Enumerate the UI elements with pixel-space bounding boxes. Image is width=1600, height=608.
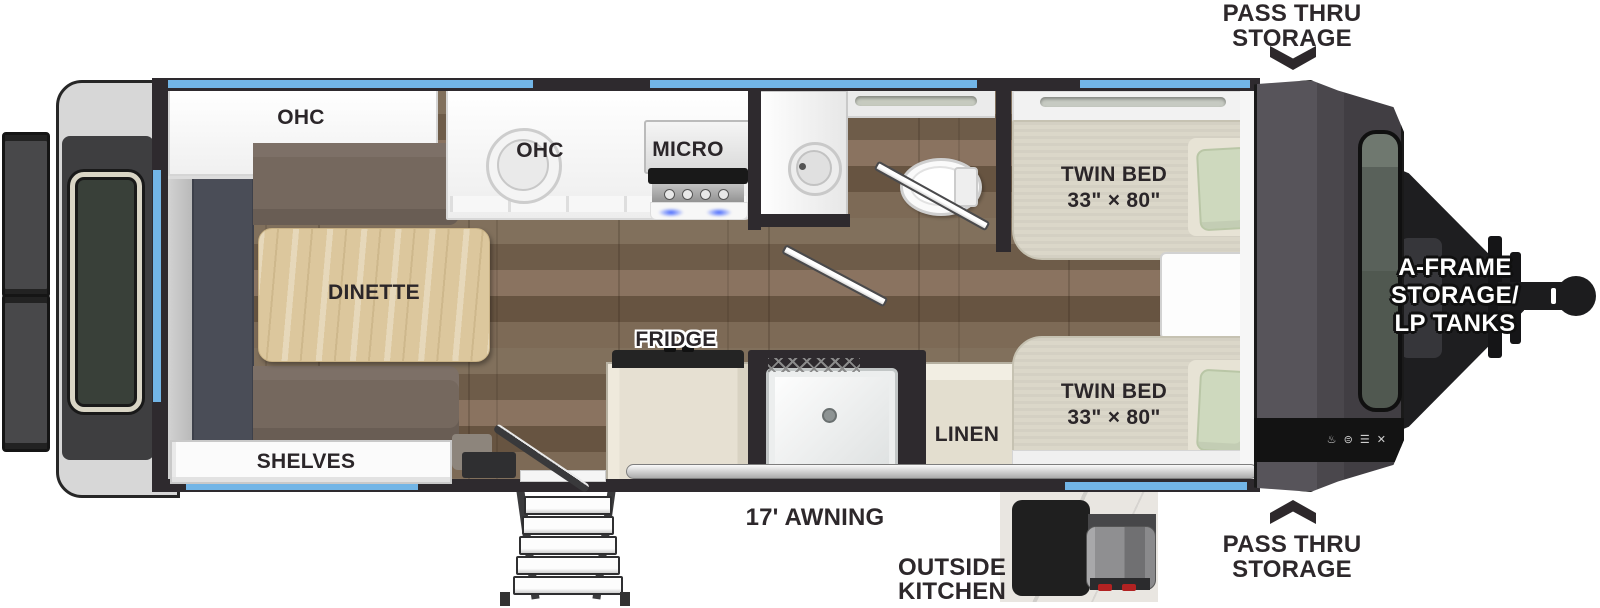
dinette-side-backrest bbox=[192, 143, 254, 443]
stove-knob bbox=[664, 189, 675, 200]
label-shelves: SHELVES bbox=[257, 451, 356, 472]
stove-led-glow bbox=[706, 208, 732, 217]
linen-closet bbox=[920, 362, 1022, 480]
step-foot bbox=[500, 592, 510, 606]
callout-outside-kitchen-line1: OUTSIDE bbox=[898, 556, 1006, 580]
hitch-coupler-latch bbox=[1551, 288, 1556, 304]
rear-window bbox=[70, 172, 142, 412]
bathroom-wall-bottom bbox=[748, 214, 850, 227]
dinette-bench-top bbox=[253, 143, 459, 225]
label-twin-bed-top: TWIN BED bbox=[1061, 164, 1167, 185]
awning-roller bbox=[626, 464, 1258, 479]
entry-step bbox=[513, 576, 623, 595]
label-twin-bed-bottom: TWIN BED bbox=[1061, 381, 1167, 402]
label-twin-bed-bottom-size: 33" × 80" bbox=[1067, 407, 1160, 428]
shower-accordion-door bbox=[768, 358, 860, 372]
outside-kitchen-griddle bbox=[1012, 500, 1090, 596]
stove-knob bbox=[700, 189, 711, 200]
chevron-up-icon bbox=[1270, 500, 1316, 524]
bathroom-towel-bar bbox=[855, 96, 977, 106]
callout-a-frame-line1: A-FRAME bbox=[1398, 256, 1511, 280]
bathroom-wall-right bbox=[996, 88, 1011, 252]
front-interior-wall bbox=[1240, 88, 1256, 480]
hitch-coupler bbox=[1556, 276, 1596, 316]
callout-outside-kitchen-line2: KITCHEN bbox=[898, 580, 1006, 604]
stove-knob bbox=[718, 189, 729, 200]
bathroom-wall-left bbox=[748, 88, 761, 230]
refrigerator-top bbox=[612, 350, 744, 368]
label-ohc-kitchen: OHC bbox=[516, 140, 564, 161]
label-micro: MICRO bbox=[652, 139, 724, 160]
label-twin-bed-top-size: 33" × 80" bbox=[1067, 190, 1160, 211]
label-ohc-rear: OHC bbox=[277, 107, 325, 128]
callout-pass-thru-top-line1: PASS THRU bbox=[1223, 2, 1362, 26]
step-foot bbox=[620, 592, 630, 606]
entry-step bbox=[524, 496, 612, 515]
bed-headboard-shelf bbox=[1012, 90, 1256, 124]
callout-pass-thru-bottom-line1: PASS THRU bbox=[1223, 533, 1362, 557]
grill-knob bbox=[1098, 584, 1112, 591]
window-strip bbox=[650, 80, 977, 88]
window-strip bbox=[168, 80, 533, 88]
brand-icons: ♨ ⊜ ☰ ✕ bbox=[1254, 418, 1404, 462]
entry-cabinet bbox=[462, 452, 516, 478]
entry-step bbox=[519, 536, 617, 555]
callout-a-frame-line2: STORAGE/ bbox=[1391, 284, 1519, 308]
callout-awning: 17' AWNING bbox=[746, 506, 885, 530]
entry-step bbox=[522, 516, 614, 535]
label-linen: LINEN bbox=[935, 424, 1000, 445]
rear-storage-pod-top bbox=[2, 132, 50, 298]
toilet-tank bbox=[954, 167, 978, 207]
callout-pass-thru-bottom-line2: STORAGE bbox=[1232, 558, 1352, 582]
grill-knob bbox=[1122, 584, 1136, 591]
stove-knob bbox=[682, 189, 693, 200]
headboard-rail bbox=[1040, 97, 1226, 107]
stove-top bbox=[648, 168, 748, 184]
shower-drain bbox=[822, 408, 837, 423]
stove-led-glow bbox=[658, 208, 684, 217]
rear-storage-pod-bottom bbox=[2, 294, 50, 452]
bathroom-faucet bbox=[799, 163, 806, 170]
dinette-bench-bottom bbox=[253, 366, 459, 444]
label-dinette: DINETTE bbox=[328, 282, 420, 303]
entry-step bbox=[516, 556, 620, 575]
window-strip bbox=[1080, 80, 1250, 88]
callout-a-frame-line3: LP TANKS bbox=[1395, 312, 1516, 336]
front-cap-window bbox=[1358, 130, 1402, 412]
floorplan-canvas: ♨ ⊜ ☰ ✕ OHC OHC MICRO DINETTE SHELVES FR… bbox=[0, 0, 1600, 608]
window-strip bbox=[153, 170, 161, 402]
window-strip bbox=[1065, 482, 1247, 490]
callout-pass-thru-top-line2: STORAGE bbox=[1232, 27, 1352, 51]
label-fridge: FRIDGE bbox=[635, 329, 716, 350]
